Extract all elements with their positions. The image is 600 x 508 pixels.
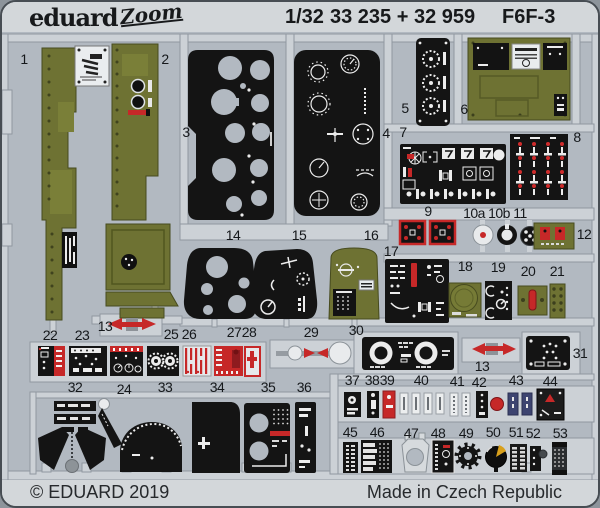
part-18-disc-plate (449, 283, 481, 317)
copyright-text: © EDUARD 2019 (30, 482, 169, 503)
part-44 (537, 389, 564, 420)
pe-fret-photo (2, 32, 600, 480)
part-5-trim-strip (416, 38, 450, 126)
part-26 (183, 346, 211, 376)
part-30-dial-panel (362, 337, 454, 370)
zoom-series-logo: Zoom (119, 0, 184, 29)
radio-placard (512, 44, 540, 69)
part-22 (38, 346, 65, 376)
knob-dial (132, 80, 145, 93)
part-36-strip (295, 402, 316, 473)
red-lever (128, 110, 148, 115)
part-4-panel-printed (294, 50, 380, 216)
made-in-text: Made in Czech Republic (367, 482, 562, 503)
footer-bar: © EDUARD 2019 Made in Czech Republic (2, 480, 598, 506)
part-46 (361, 440, 392, 473)
catalog-numbers: 33 235 + 32 959 (330, 6, 475, 29)
part-17-electrical-panel (385, 259, 449, 323)
part-27 (214, 346, 243, 376)
part-16-headrest-panel (329, 248, 379, 319)
part-14-subpanel-frame (184, 248, 257, 319)
part-23 (69, 346, 107, 376)
red-handle-print (411, 263, 417, 287)
part-19-printed-box (485, 281, 512, 320)
scale-label: 1/32 (285, 6, 324, 29)
part-6-radio-panel (468, 38, 570, 120)
part-34-armor-panel (192, 402, 240, 473)
part-37 (344, 392, 361, 417)
eduard-logo: eduard (29, 3, 117, 32)
part-24 (110, 346, 143, 376)
header-bar: eduard Zoom 1/32 33 235 + 32 959 F6F-3 (2, 2, 598, 32)
part-35-grid-panel (244, 403, 290, 473)
printed-disc (121, 254, 137, 270)
part-8-switch-panel (510, 134, 568, 200)
part-48 (432, 440, 454, 473)
fuel-counter-print (442, 148, 493, 159)
part-38 (367, 391, 379, 418)
product-photo-card: eduard Zoom 1/32 33 235 + 32 959 F6F-3 (0, 0, 600, 508)
part-15-subpanel-printed (252, 249, 317, 319)
part-51 (510, 444, 527, 472)
part-7-subpanel (400, 144, 506, 204)
part-21-strip (550, 284, 565, 318)
knob-dial (132, 96, 145, 109)
part-20-red-switch-plate (518, 286, 547, 315)
part-3-panel-front (188, 50, 274, 220)
sheet-card: eduard Zoom 1/32 33 235 + 32 959 F6F-3 (0, 0, 600, 508)
part-39 (383, 391, 395, 418)
product-name: F6F-3 (502, 6, 555, 29)
part-53 (552, 442, 567, 475)
part-28 (245, 347, 260, 376)
part-25 (147, 346, 179, 376)
part-31-bracket-plate (526, 336, 570, 370)
red-stripe-print (270, 431, 290, 436)
part-12-toggle-plate (534, 223, 574, 249)
part-47-bracket (402, 433, 429, 472)
part-placard-plate (75, 46, 109, 86)
part-45 (343, 442, 358, 473)
